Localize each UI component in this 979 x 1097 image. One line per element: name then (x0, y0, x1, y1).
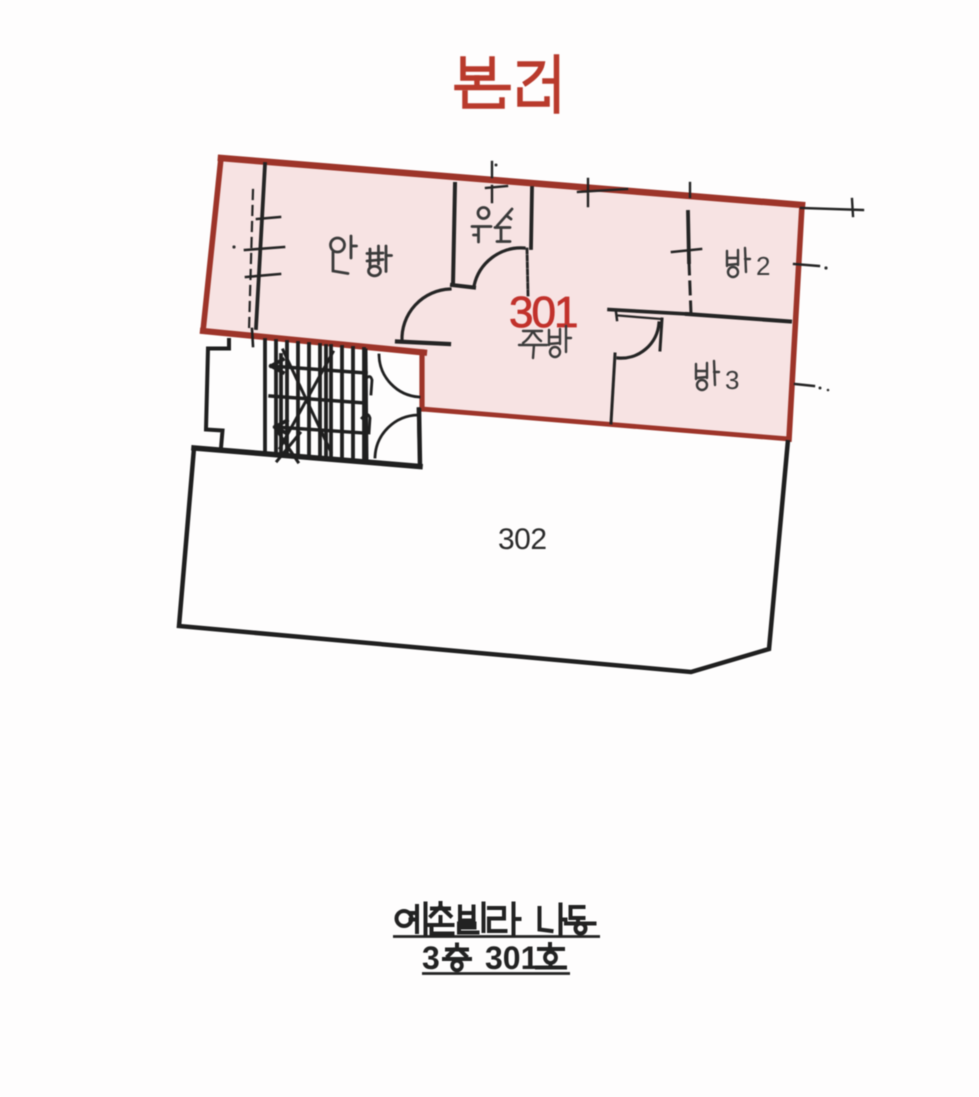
svg-text:3: 3 (725, 365, 739, 395)
svg-text:302: 302 (498, 523, 547, 556)
svg-text:3: 3 (422, 940, 440, 976)
svg-text:2: 2 (756, 251, 770, 281)
svg-text:301: 301 (485, 940, 538, 976)
